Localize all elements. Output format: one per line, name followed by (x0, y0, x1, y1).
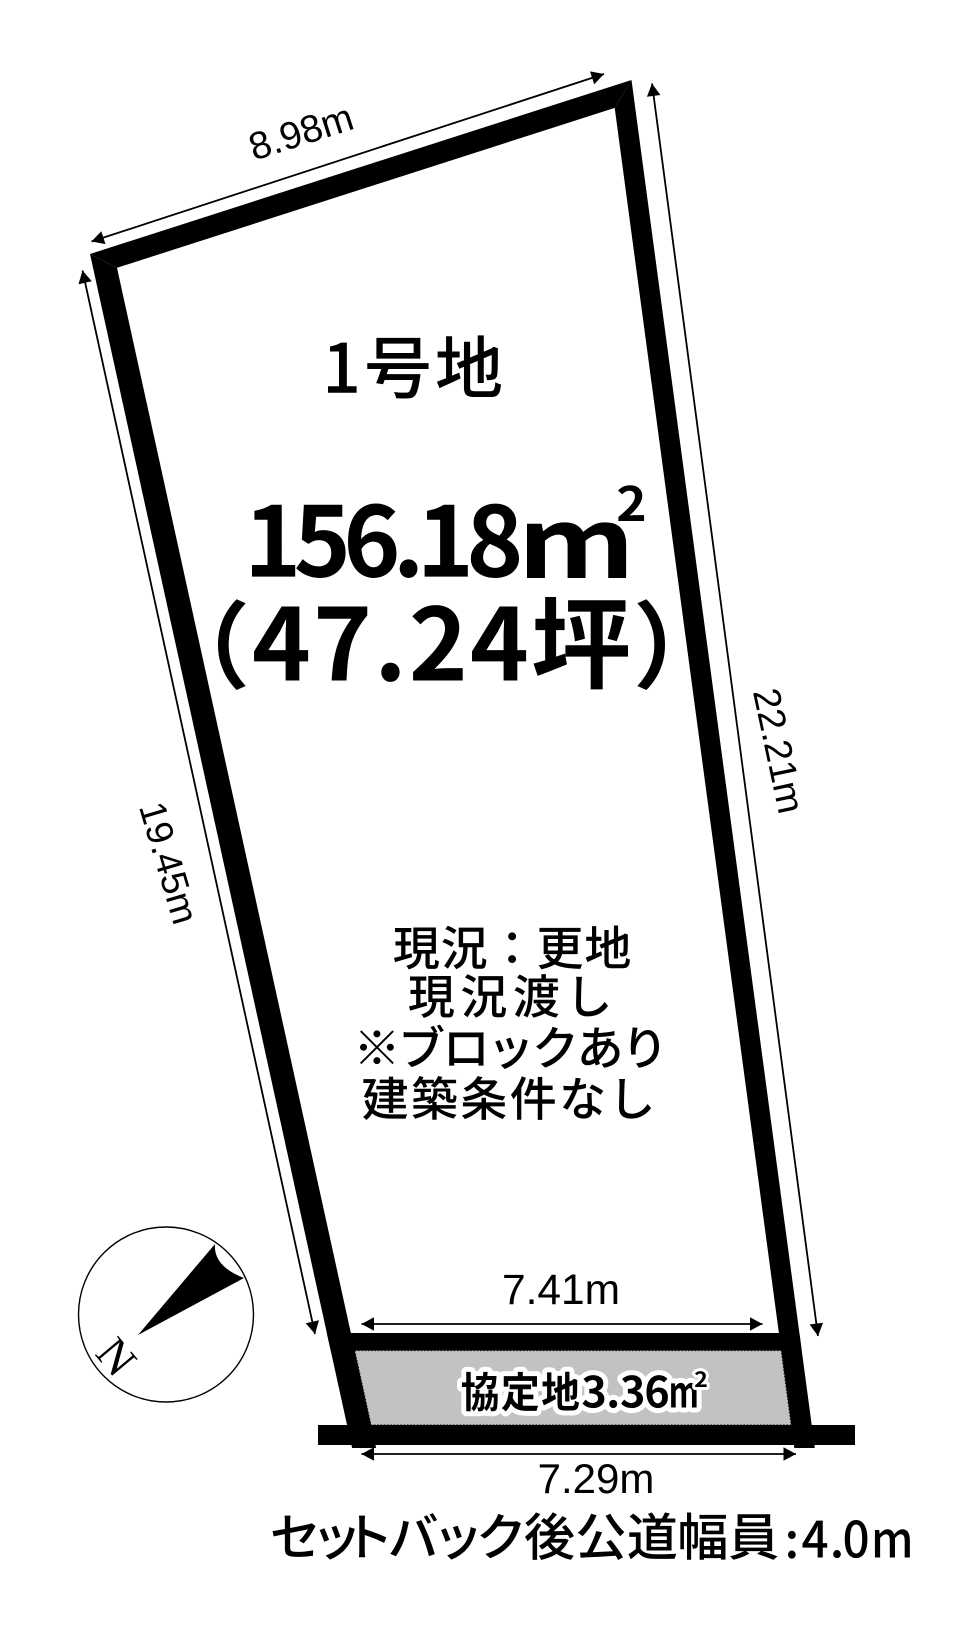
svg-text:7.41m: 7.41m (502, 1267, 620, 1314)
svg-text:7.29m: 7.29m (538, 1455, 655, 1502)
